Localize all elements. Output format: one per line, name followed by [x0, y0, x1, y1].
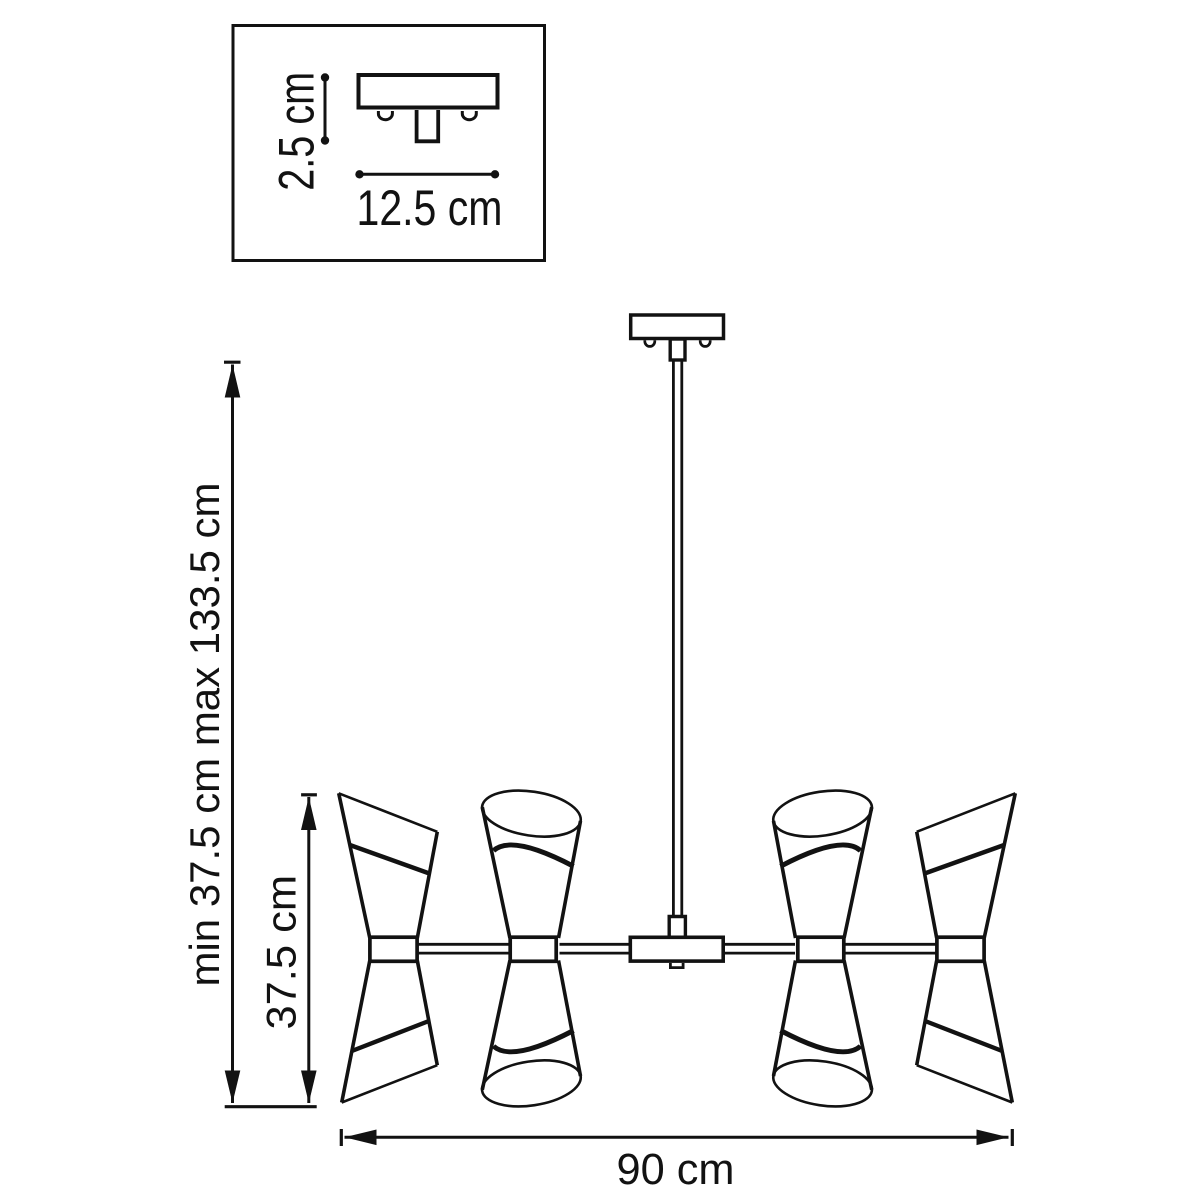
svg-text:37.5 cm: 37.5 cm	[258, 875, 305, 1030]
svg-text:12.5 cm: 12.5 cm	[357, 180, 503, 236]
svg-text:90 cm: 90 cm	[617, 1145, 735, 1194]
svg-text:2.5 cm: 2.5 cm	[269, 72, 325, 191]
svg-text:min 37.5 cm max 133.5 cm: min 37.5 cm max 133.5 cm	[181, 483, 228, 987]
